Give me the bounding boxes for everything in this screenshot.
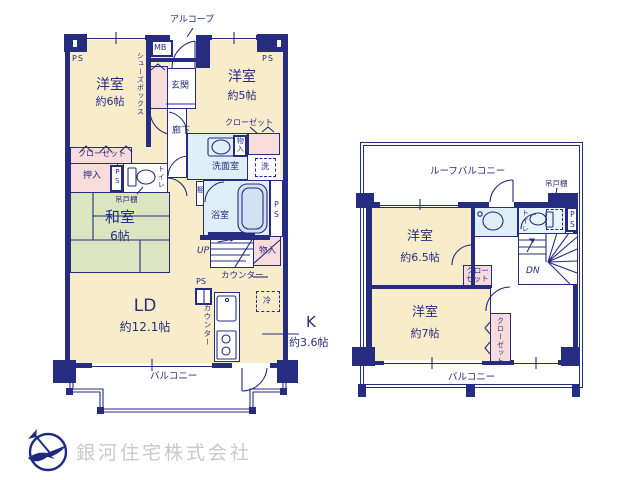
room7-size: 約7帖 [395, 328, 455, 340]
unit2-window-bottom2 [514, 360, 558, 365]
closet7-label: クローゼット [496, 317, 503, 365]
ps2-label: PS [568, 210, 576, 230]
balcony-door-arc-icon [242, 368, 267, 391]
ps-label-bath: PS [272, 200, 280, 220]
unit2-pillar-bl [352, 347, 375, 366]
unit1-window-top1 [87, 35, 145, 40]
unit1-pillar-tr [257, 34, 288, 52]
bath-label: 浴室 [211, 212, 229, 221]
company-logo [22, 426, 70, 474]
unit2-room-65 [371, 207, 473, 288]
unit1-ps-kitchen [195, 288, 212, 305]
room6-name: 洋室 [80, 78, 140, 93]
dn-label: DN [526, 267, 540, 276]
room6-size: 約6帖 [80, 96, 140, 108]
mb-label: MB [154, 44, 166, 52]
alcove-label: アルコーブ [170, 16, 214, 25]
kitchen-size: 約3.6帖 [289, 337, 329, 349]
unit1-alcove [170, 33, 196, 70]
closet65-label: クロー ゼット [463, 267, 492, 283]
unit1-entrance-side-wall [196, 36, 210, 68]
oshiire-label: 押入 [83, 172, 101, 181]
unit1-stairs-up [210, 236, 254, 268]
unit1-pillar-tr-notch [277, 40, 281, 47]
balcony2-label: バルコニー [448, 373, 495, 383]
unit1-pillar-tl-notch [73, 40, 77, 47]
unit2-hanging-cupboard-box [546, 209, 563, 230]
hanging-cupboard2-label: 吊戸棚 [545, 180, 568, 188]
toilet2-label: トイレ [521, 209, 528, 233]
toilet-label: トイレ [157, 165, 164, 189]
room5-size: 約5帖 [212, 90, 272, 102]
corridor-label: 廊下 [172, 127, 190, 136]
ps-label-tl: PS [72, 55, 84, 63]
room5-name: 洋室 [212, 70, 272, 85]
unit2-balcony-post-left [358, 384, 366, 397]
shelf-label: 棚 [197, 187, 204, 194]
unit2-washbasin-area [473, 207, 518, 237]
unit1-wall-mb [149, 58, 197, 62]
counter-v-label: カウンター [203, 304, 211, 347]
washitsu-size: 6帖 [90, 230, 150, 243]
unit1-balcony-door-gap [232, 363, 270, 368]
washitsu-name: 和室 [90, 210, 150, 226]
storage-stairs-label: 物入 [259, 247, 276, 256]
entrance-label: 玄関 [171, 82, 189, 91]
unit1-window-top2 [212, 35, 256, 40]
roof-balcony-label: ルーフバルコニー [430, 167, 505, 177]
unit1-kitchen-counter [214, 292, 240, 362]
unit2-window-top [380, 202, 458, 207]
counter-h-label: カウンター [221, 272, 264, 281]
unit1-corridor [167, 108, 187, 178]
kitchen-name: K [306, 315, 316, 331]
unit2-room-7 [371, 287, 491, 362]
closet5-label: クローゼット [225, 119, 273, 127]
room7-name: 洋室 [395, 306, 455, 320]
ld-size: 約12.1帖 [105, 321, 185, 334]
unit2-window-bottom1 [384, 360, 482, 365]
bird-logo-icon [22, 426, 70, 474]
ld-name: LD [110, 298, 180, 316]
unit1-pillar-bl [53, 360, 76, 383]
ps-label-small: PS [113, 168, 120, 186]
unit2-balcony-post-right [572, 384, 580, 397]
washroom-label: 洗面室 [212, 163, 239, 172]
unit2-balcony-post-mid [466, 384, 475, 397]
ps-label-tr: PS [262, 55, 274, 63]
unit2-pillar-tr [548, 193, 578, 208]
hanging-cupboard1-label: 吊戸棚 [115, 196, 138, 204]
storage-washroom-label: 物入 [236, 137, 243, 153]
unit1-wall-stairs-top [208, 232, 255, 236]
unit2-roof-door-gap [489, 202, 514, 207]
unit1-pillar-br [277, 360, 298, 383]
unit1-bath [203, 180, 270, 237]
company-name: 銀河住宅株式会社 [76, 438, 252, 465]
unit2-pillar-tl [356, 193, 374, 208]
unit1-closet-room5 [248, 133, 280, 155]
unit1-window-bottom [92, 363, 212, 368]
up-label: UP [197, 247, 209, 256]
laundry-label: 洗 [261, 163, 269, 171]
unit2-wall-rooms [368, 285, 491, 289]
fridge-label: 冷 [263, 297, 271, 305]
balcony1-label: バルコニー [150, 372, 197, 382]
floorplan-image: アルコーブ PS PS MB シューズボックス 玄関 洋室 約6帖 洋室 約5帖… [0, 0, 640, 480]
unit2-stairs-dn [518, 233, 578, 285]
ps-label-kitchen: PS [196, 278, 206, 286]
room65-size: 約6.5帖 [385, 252, 455, 264]
unit2-pillar-br [561, 347, 579, 366]
closet6-label: クローゼット [78, 150, 126, 158]
unit1-shoe-box [149, 66, 168, 109]
room65-name: 洋室 [390, 230, 450, 244]
